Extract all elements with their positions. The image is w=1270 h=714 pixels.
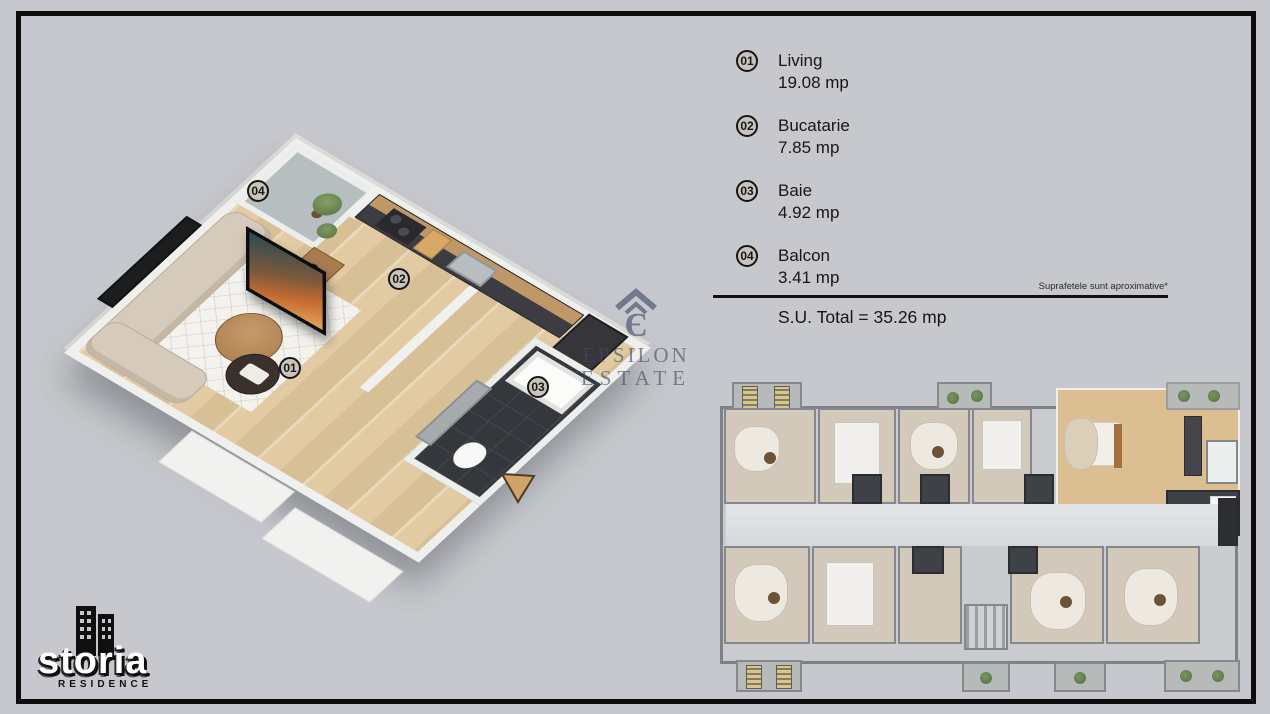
apartment-room [724, 408, 816, 504]
epsilon-watermark: Є EPSILON ESTATE [566, 286, 706, 390]
storia-watermark-text: storia [38, 640, 147, 683]
bathroom-cell [1008, 546, 1038, 574]
legend-badge: 01 [736, 50, 758, 72]
epsilon-text-line1: EPSILON [566, 344, 706, 367]
balcony-plant [307, 189, 348, 220]
corridor [726, 504, 1224, 546]
bathroom-cell [1024, 474, 1054, 504]
apartment-room [812, 546, 896, 644]
legend-item-bath: 03 Baie 4.92 mp [736, 180, 1186, 224]
bathroom-cell [852, 474, 882, 504]
room-badge-kitchen: 02 [388, 268, 410, 290]
svg-text:Є: Є [624, 307, 647, 342]
apartment-3d-plan [64, 138, 651, 563]
balcony-bottom [736, 660, 802, 692]
legend-badge: 04 [736, 245, 758, 267]
apartment-room [724, 546, 810, 644]
room-badge-balcony: 04 [247, 180, 269, 202]
room-area: 3.41 mp [778, 267, 839, 289]
room-badge-bath: 03 [527, 376, 549, 398]
bathroom-cell [920, 474, 950, 504]
legend-item-kitchen: 02 Bucatarie 7.85 mp [736, 115, 1186, 159]
elevator-shaft [1218, 498, 1238, 546]
legend-badge: 03 [736, 180, 758, 202]
epsilon-house-icon: Є [613, 286, 659, 342]
disclaimer-note: Suprafetele sunt aproximative* [868, 281, 1168, 292]
room-area: 7.85 mp [778, 137, 850, 159]
balcony-top [937, 382, 992, 410]
unit-sofa [1064, 418, 1098, 470]
balcony-bottom [962, 662, 1010, 692]
residence-label: RESIDENCE [58, 679, 152, 690]
apartment-room [1106, 546, 1200, 644]
total-area: S.U. Total = 35.26 mp [778, 307, 946, 328]
room-name: Living [778, 50, 849, 72]
balcony-bottom [1054, 662, 1106, 692]
toilet [447, 438, 493, 473]
room-area: 4.92 mp [778, 202, 839, 224]
unit-tv-console [1114, 424, 1122, 468]
highlighted-unit-balcony [1166, 382, 1240, 410]
bathroom-cell [912, 546, 944, 574]
balcony-bottom [1164, 660, 1240, 692]
stairwell [964, 604, 1008, 650]
room-badge-living: 01 [279, 357, 301, 379]
room-name: Bucatarie [778, 115, 850, 137]
unit-kitchen [1184, 416, 1202, 476]
serving-tray [238, 362, 270, 385]
entrance-arrow-icon [499, 471, 537, 505]
service-cell [1206, 440, 1238, 484]
legend-divider [713, 295, 1168, 298]
apartment-room [972, 408, 1032, 504]
floor-plan-overview [712, 380, 1246, 698]
epsilon-text-line2: ESTATE [566, 367, 706, 390]
legend-item-living: 01 Living 19.08 mp [736, 50, 1186, 94]
room-name: Balcon [778, 245, 839, 267]
legend: 01 Living 19.08 mp 02 Bucatarie 7.85 mp … [736, 50, 1186, 310]
room-name: Baie [778, 180, 839, 202]
legend-badge: 02 [736, 115, 758, 137]
room-area: 19.08 mp [778, 72, 849, 94]
